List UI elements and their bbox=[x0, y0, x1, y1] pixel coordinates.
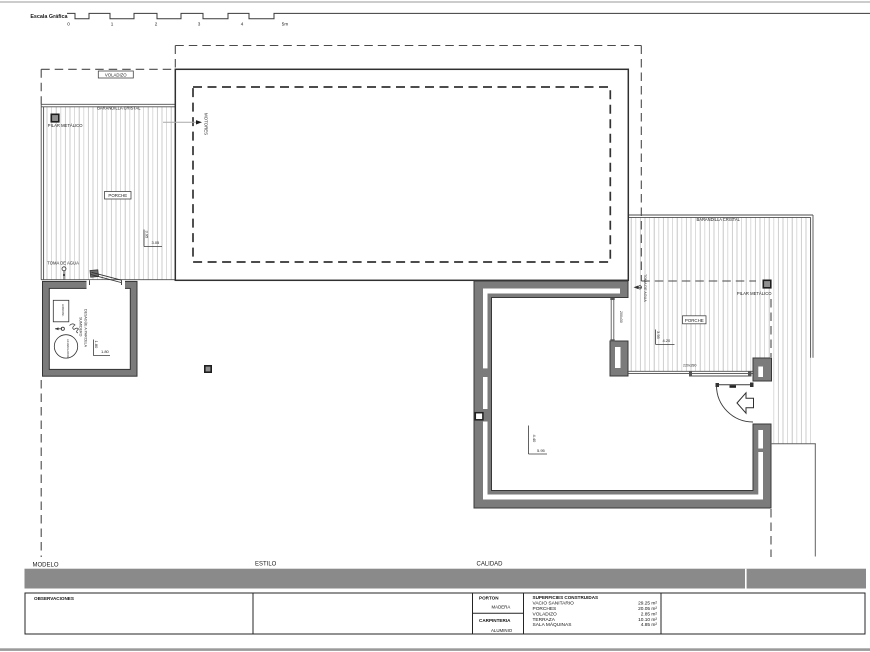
svg-text:PORCHES: PORCHES bbox=[533, 606, 557, 612]
svg-text:PILAR METÁLICO: PILAR METÁLICO bbox=[737, 291, 772, 296]
svg-text:PORCHE: PORCHE bbox=[685, 318, 704, 323]
svg-text:4.85 m²: 4.85 m² bbox=[641, 622, 658, 628]
svg-text:4.20: 4.20 bbox=[663, 338, 672, 343]
svg-text:BARANDILLA CRISTAL: BARANDILLA CRISTAL bbox=[97, 105, 141, 110]
svg-text:TOMA DE AGUA: TOMA DE AGUA bbox=[643, 274, 647, 302]
svg-text:TERRAZA: TERRAZA bbox=[533, 617, 556, 623]
svg-text:4: 4 bbox=[241, 22, 244, 27]
svg-text:VACIO SANITARIO: VACIO SANITARIO bbox=[533, 601, 575, 607]
svg-text:1.80: 1.80 bbox=[101, 349, 110, 354]
svg-text:VOLADIZO: VOLADIZO bbox=[533, 611, 558, 617]
svg-text:3.05: 3.05 bbox=[152, 240, 161, 245]
svg-text:10.10 m²: 10.10 m² bbox=[638, 617, 657, 623]
svg-text:TOMA DE AGUA: TOMA DE AGUA bbox=[47, 260, 79, 265]
svg-text:Escala Gráfica: Escala Gráfica bbox=[30, 14, 68, 20]
svg-text:5.95: 5.95 bbox=[537, 448, 546, 453]
svg-text:3: 3 bbox=[198, 22, 201, 27]
svg-text:4.40: 4.40 bbox=[532, 435, 537, 444]
svg-text:1.80: 1.80 bbox=[94, 341, 99, 350]
svg-text:2.85 m²: 2.85 m² bbox=[641, 611, 658, 617]
svg-text:MADERA: MADERA bbox=[492, 605, 511, 610]
svg-text:PILAR METÁLICO: PILAR METÁLICO bbox=[48, 123, 83, 128]
svg-text:3.95: 3.95 bbox=[656, 331, 661, 340]
svg-text:5m: 5m bbox=[282, 22, 289, 27]
svg-text:MODELO: MODELO bbox=[33, 562, 59, 568]
svg-text:ALUMINIO: ALUMINIO bbox=[491, 628, 513, 633]
svg-text:BARANDILLA CRISTAL: BARANDILLA CRISTAL bbox=[697, 217, 741, 222]
svg-text:CALIDAD: CALIDAD bbox=[477, 561, 504, 567]
svg-text:PORCHE: PORCHE bbox=[108, 193, 127, 198]
svg-text:VOLADIZO: VOLADIZO bbox=[105, 72, 127, 77]
svg-text:ESTILO: ESTILO bbox=[255, 561, 277, 567]
svg-text:OBSERVACIONES: OBSERVACIONES bbox=[34, 596, 74, 601]
svg-text:220x280: 220x280 bbox=[683, 364, 696, 368]
svg-text:PORTON: PORTON bbox=[479, 595, 499, 600]
svg-text:0: 0 bbox=[67, 22, 70, 27]
svg-text:3.95: 3.95 bbox=[145, 231, 150, 240]
svg-text:SUPERFICIES CONSTRUIDAS: SUPERFICIES CONSTRUIDAS bbox=[533, 595, 599, 600]
svg-text:20.05 m²: 20.05 m² bbox=[638, 606, 657, 612]
svg-text:SUMIDERO: SUMIDERO bbox=[79, 317, 83, 337]
svg-text:HIDROSF.: HIDROSF. bbox=[61, 304, 65, 317]
svg-text:SALA MÁQUINAS: SALA MÁQUINAS bbox=[533, 621, 572, 628]
svg-text:2: 2 bbox=[155, 22, 158, 27]
svg-text:200x30: 200x30 bbox=[619, 311, 623, 323]
svg-text:DESAGÜE A PARCELA: DESAGÜE A PARCELA bbox=[84, 309, 88, 348]
svg-text:ACUMULADOR: ACUMULADOR bbox=[66, 339, 70, 358]
svg-text:29.25 m²: 29.25 m² bbox=[638, 601, 657, 607]
svg-text:CARPINTERIA: CARPINTERIA bbox=[479, 618, 511, 623]
svg-text:MOTORES: MOTORES bbox=[204, 113, 209, 135]
svg-text:1: 1 bbox=[111, 22, 114, 27]
